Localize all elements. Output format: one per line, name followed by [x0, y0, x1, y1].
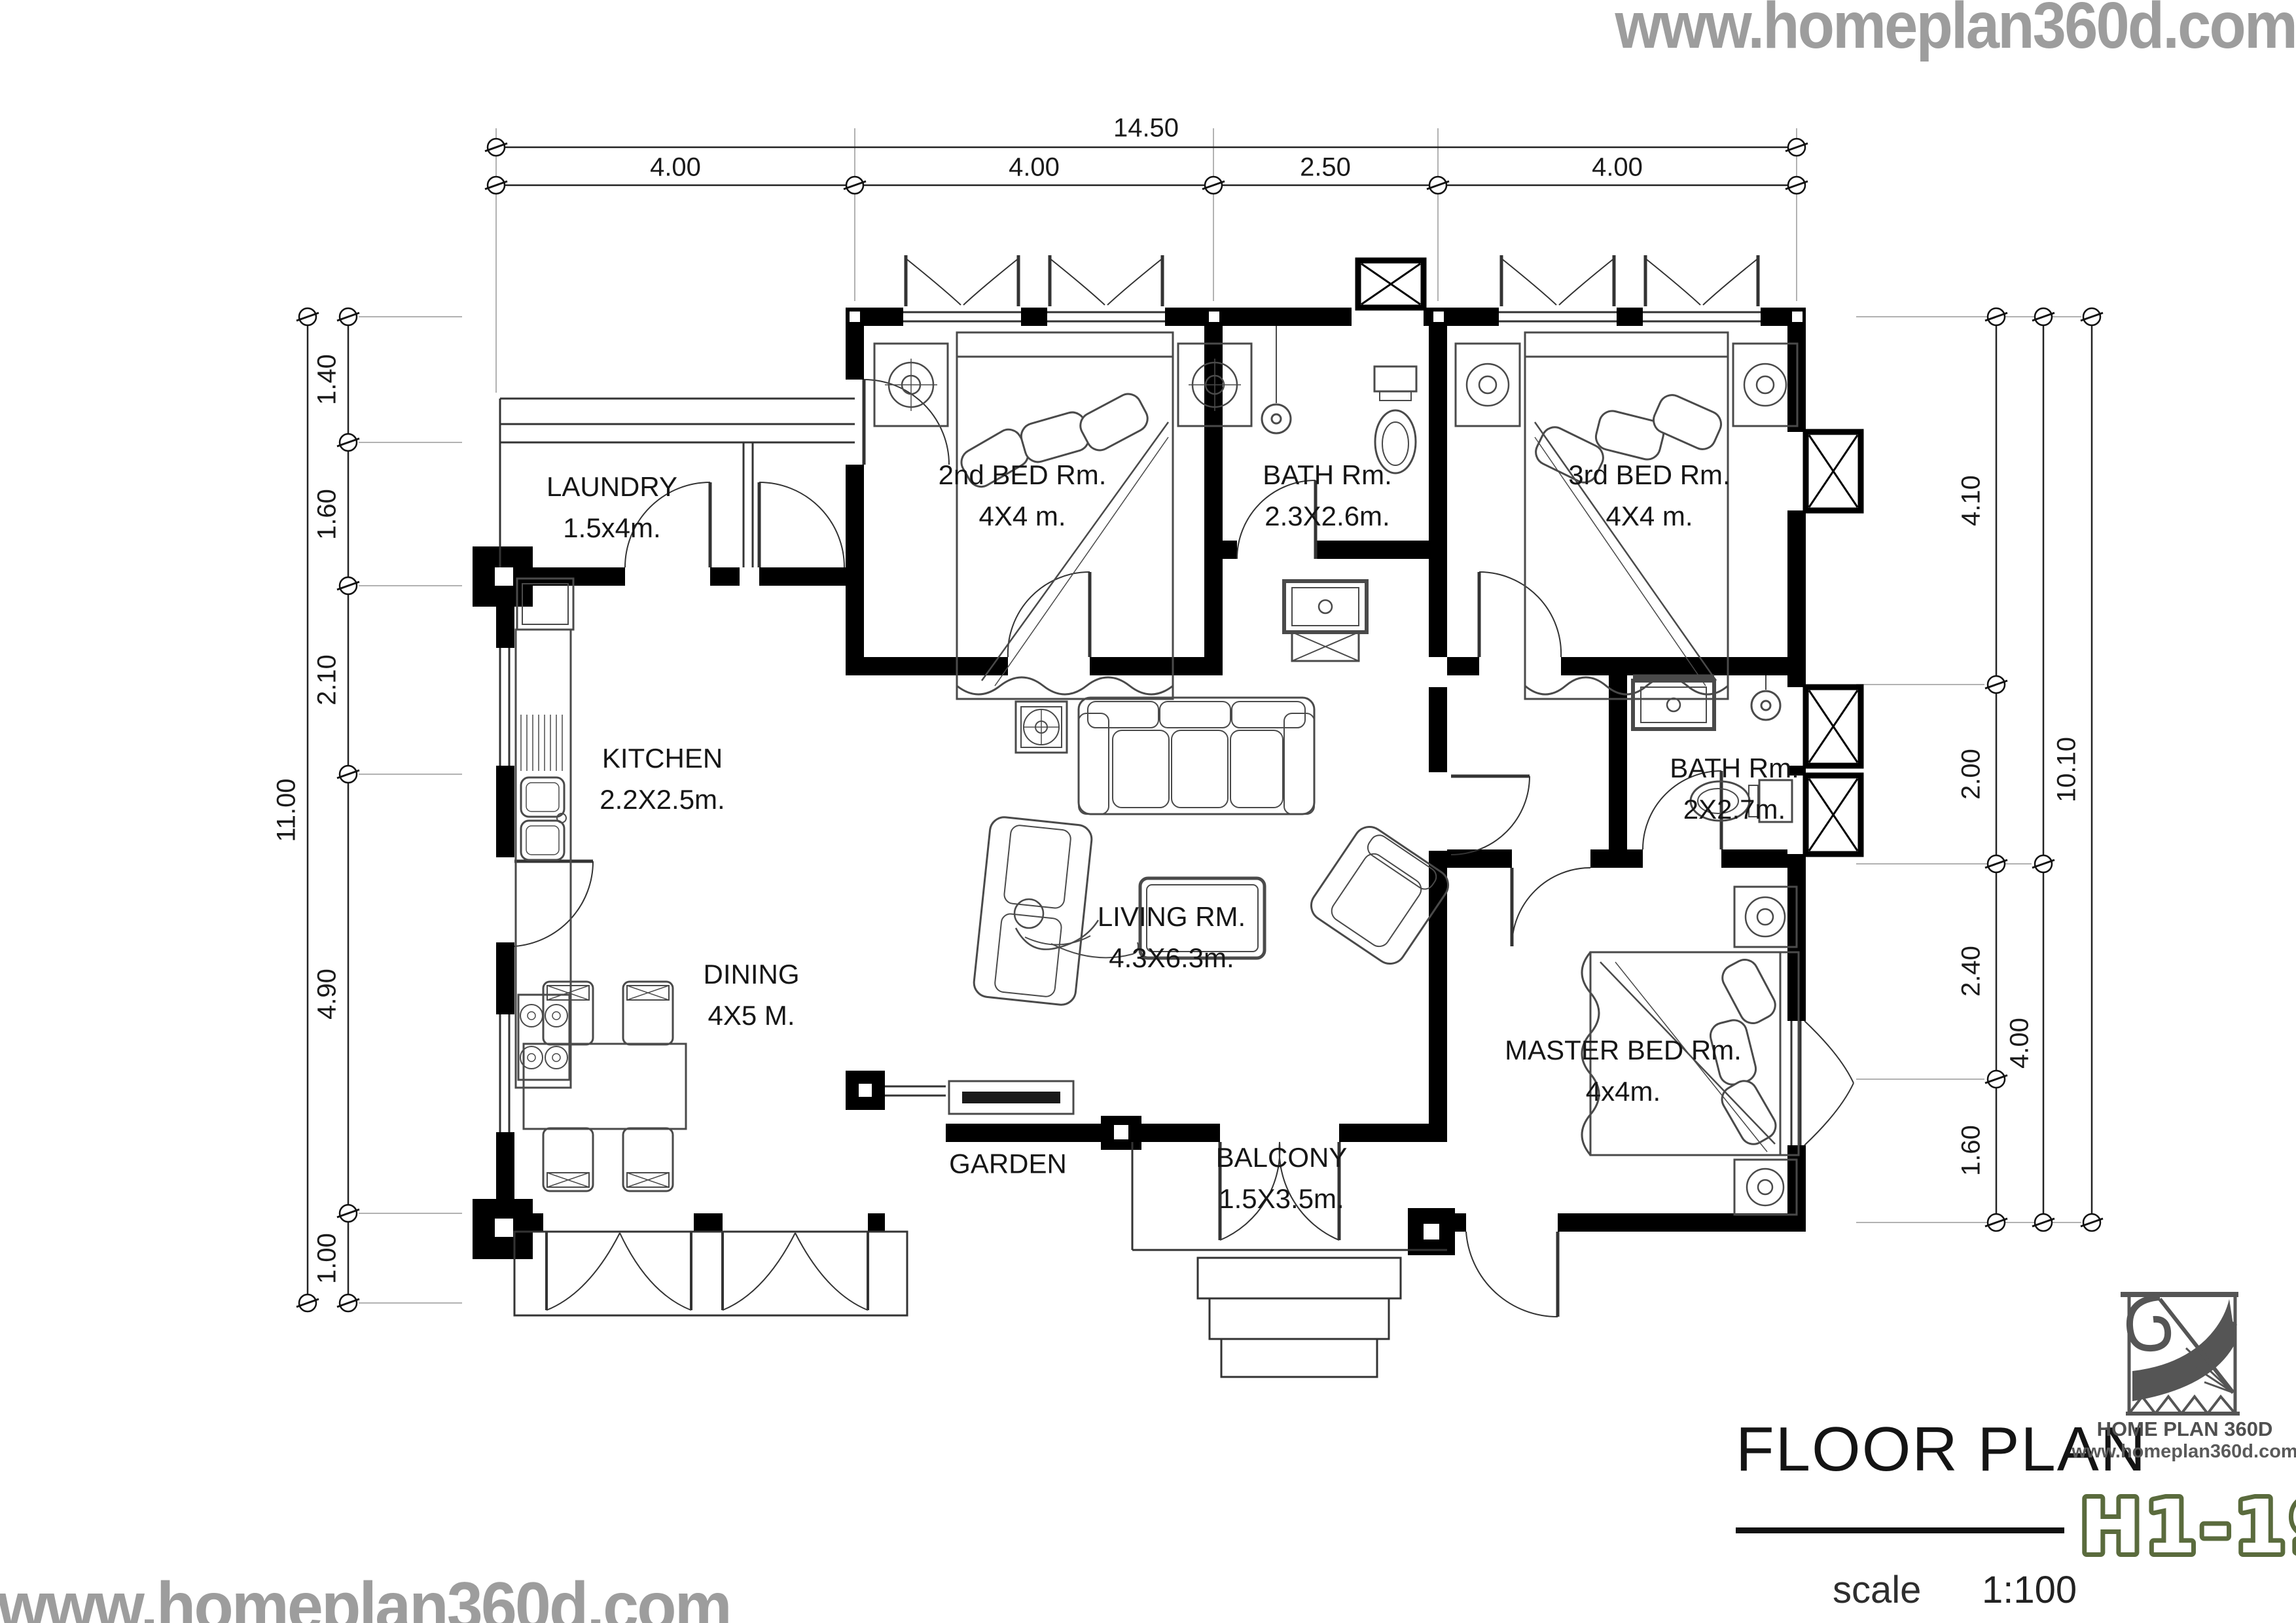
room-label-bed3: 3rd BED Rm. 4X4 m. [1568, 454, 1730, 537]
room-size: 4x4m. [1505, 1071, 1742, 1112]
room-name: KITCHEN [600, 738, 725, 779]
title-divider [1736, 1527, 2064, 1533]
room-name: BALCONY [1216, 1137, 1348, 1178]
dim-left-seg-5: 1.00 [313, 1233, 342, 1284]
room-label-living: LIVING RM. 4.3X6.3m. [1098, 896, 1246, 978]
room-label-bed2: 2nd BED Rm. 4X4 m. [939, 454, 1107, 537]
room-label-kitchen: KITCHEN 2.2X2.5m. [600, 738, 725, 820]
room-name: BATH Rm. [1263, 454, 1392, 495]
dim-left-seg-3: 2.10 [313, 654, 342, 705]
dim-top-seg-4: 4.00 [1592, 153, 1643, 183]
dim-left-seg-1: 1.40 [313, 354, 342, 405]
room-size: 1.5X3.5m. [1216, 1178, 1348, 1219]
watermark-top-right: www.homeplan360d.com [1615, 0, 2296, 63]
room-name: 2nd BED Rm. [939, 454, 1107, 495]
room-size: 2.3X2.6m. [1263, 495, 1392, 537]
room-name: 3rd BED Rm. [1568, 454, 1730, 495]
room-label-master: MASTER BED Rm. 4x4m. [1505, 1029, 1742, 1112]
logo-name: HOME PLAN 360D [2097, 1418, 2273, 1441]
room-name: LAUNDRY [547, 466, 677, 507]
dim-left-seg-4: 4.90 [313, 969, 342, 1020]
plan-code: H1-19 [2080, 1485, 2296, 1570]
dim-right-span: 4.00 [2005, 1018, 2035, 1069]
dim-right-seg-2: 2.00 [1957, 749, 1986, 800]
homeplan360d-logo-icon [2121, 1294, 2240, 1414]
dining-set [524, 982, 686, 1191]
dim-right-total: 10.10 [2053, 737, 2082, 802]
room-name: LIVING RM. [1098, 896, 1246, 937]
room-size: 4X5 M. [704, 995, 800, 1036]
room-name: MASTER BED Rm. [1505, 1029, 1742, 1071]
room-label-laundry: LAUNDRY 1.5x4m. [547, 466, 677, 548]
watermark-bottom-left: www.homeplan360d.com [0, 1568, 730, 1623]
dim-left-seg-2: 1.60 [313, 489, 342, 540]
scale-value: 1:100 [1982, 1568, 2077, 1612]
scale-label: scale [1833, 1568, 1921, 1612]
room-name: GARDEN [949, 1143, 1067, 1185]
dim-top-seg-3: 2.50 [1300, 153, 1351, 183]
room-size: 2X2.7m. [1670, 789, 1799, 830]
doors [514, 380, 1721, 1317]
room-size: 4X4 m. [939, 495, 1107, 537]
dim-top-seg-2: 4.00 [1009, 153, 1060, 183]
dim-right-seg-1: 4.10 [1957, 475, 1986, 526]
room-label-bath-top: BATH Rm. 2.3X2.6m. [1263, 454, 1392, 537]
kitchen-counter [516, 579, 573, 1088]
dim-top-seg-1: 4.00 [650, 153, 701, 183]
floor-plan-sheet: H1-19 www.homeplan360d.com www.homeplan3… [0, 0, 2296, 1623]
dim-right-seg-3: 2.40 [1957, 946, 1986, 997]
room-name: BATH Rm. [1670, 747, 1799, 789]
dim-right-seg-4: 1.60 [1957, 1125, 1986, 1176]
room-name: DINING [704, 954, 800, 995]
room-size: 1.5x4m. [547, 507, 677, 548]
room-size: 4.3X6.3m. [1098, 937, 1246, 978]
dim-top-total: 14.50 [1113, 114, 1179, 143]
room-size: 4X4 m. [1568, 495, 1730, 537]
dim-left-total: 11.00 [272, 778, 302, 842]
room-label-garden: GARDEN [949, 1143, 1067, 1185]
room-label-dining: DINING 4X5 M. [704, 954, 800, 1036]
room-size: 2.2X2.5m. [600, 779, 725, 820]
room-label-balcony: BALCONY 1.5X3.5m. [1216, 1137, 1348, 1219]
logo-site: www.homeplan360d.com [2072, 1441, 2296, 1463]
floor-plan-drawing: H1-19 [0, 0, 2296, 1623]
room-label-bath-master: BATH Rm. 2X2.7m. [1670, 747, 1799, 830]
window-leaves [906, 255, 1854, 1145]
